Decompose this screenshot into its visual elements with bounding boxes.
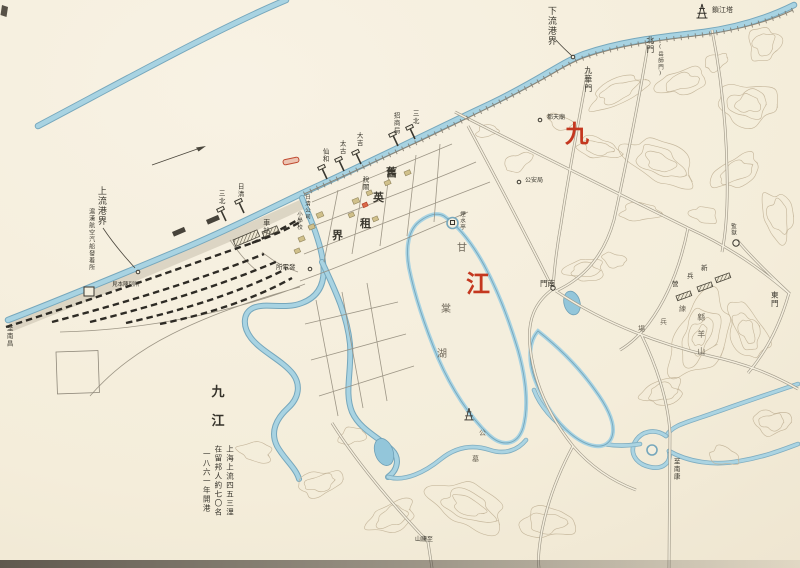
yangtze-far-bank bbox=[38, 0, 286, 126]
legend-description: 上海上流四五三浬 在留邦人約七〇名 一八六一年開港 bbox=[201, 436, 236, 526]
yanshui-island bbox=[447, 218, 458, 229]
legend-block: 九 江 上海上流四五三浬 在留邦人約七〇名 一八六一年開港 bbox=[190, 386, 246, 530]
scan-speck bbox=[1, 5, 9, 17]
gantang-lake bbox=[407, 214, 526, 443]
map-canvas bbox=[0, 0, 800, 568]
legend-line-3: 一八六一年開港 bbox=[201, 436, 213, 526]
legend-title-char-2: 江 bbox=[190, 415, 246, 428]
piers bbox=[217, 124, 418, 222]
legend-line-2: 在留邦人約七〇名 bbox=[212, 436, 224, 526]
city-buildings bbox=[294, 170, 411, 254]
legend-line-1: 上海上流四五三浬 bbox=[224, 436, 236, 526]
bund bbox=[304, 10, 793, 194]
barracks-buildings bbox=[676, 273, 731, 301]
flow-arrow-icon bbox=[152, 146, 206, 165]
scan-bottom-shadow bbox=[0, 560, 800, 568]
nanmen-lake bbox=[530, 331, 613, 446]
jiujiang-historical-map: 九江下流港界鎖江塔北門(岳師門)九華門都天廟公安局上流港界滬漢航空汽船發着所見本… bbox=[0, 0, 800, 568]
boat-symbol bbox=[283, 157, 300, 165]
prison-circle bbox=[733, 240, 739, 246]
legend-title-char-1: 九 bbox=[190, 386, 246, 399]
suojiang-pagoda-icon bbox=[697, 4, 708, 18]
landing-office-building bbox=[84, 287, 94, 296]
airfield-square bbox=[56, 351, 99, 394]
